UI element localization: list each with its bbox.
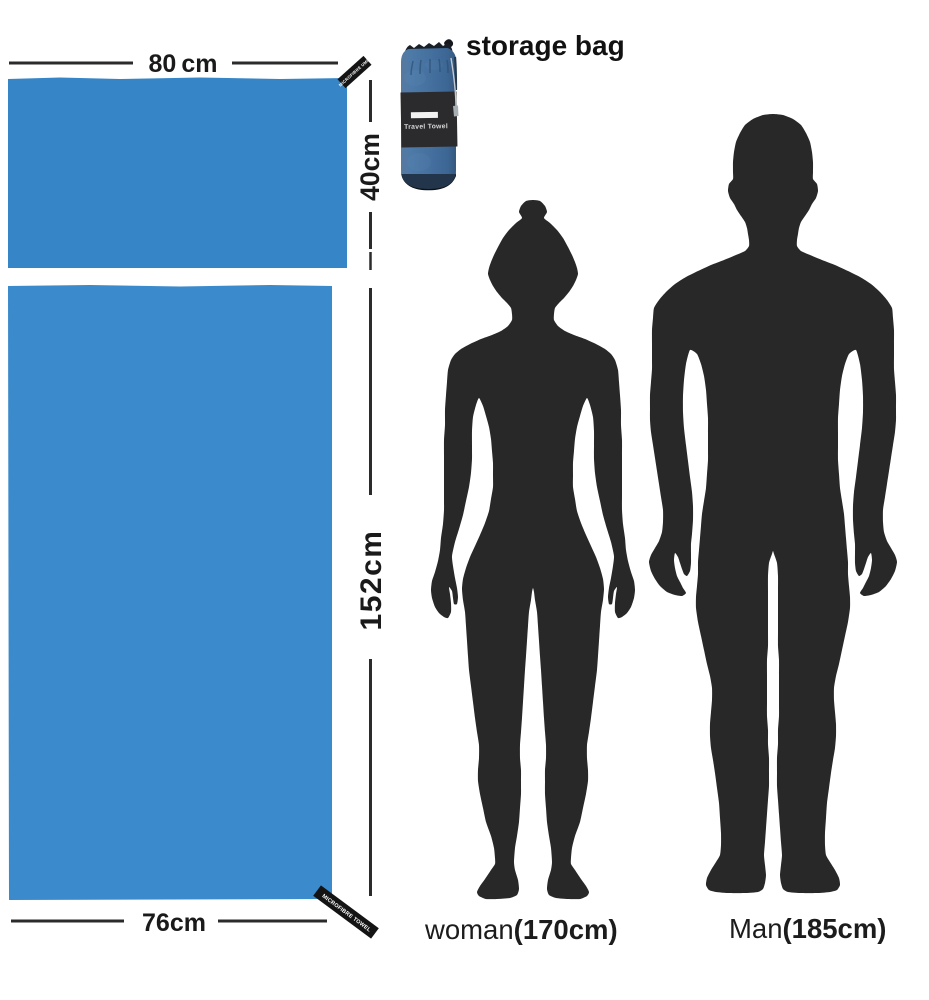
svg-text:76cm: 76cm	[142, 909, 206, 937]
svg-text:152cm: 152cm	[355, 530, 388, 631]
svg-text:40cm: 40cm	[355, 133, 385, 201]
svg-text:woman(170cm): woman(170cm)	[424, 914, 618, 945]
svg-text:Travel Towel: Travel Towel	[404, 123, 448, 131]
svg-text:80 cm: 80 cm	[149, 50, 218, 78]
svg-text:storage bag: storage bag	[466, 30, 625, 61]
svg-text:Man(185cm): Man(185cm)	[729, 913, 886, 944]
